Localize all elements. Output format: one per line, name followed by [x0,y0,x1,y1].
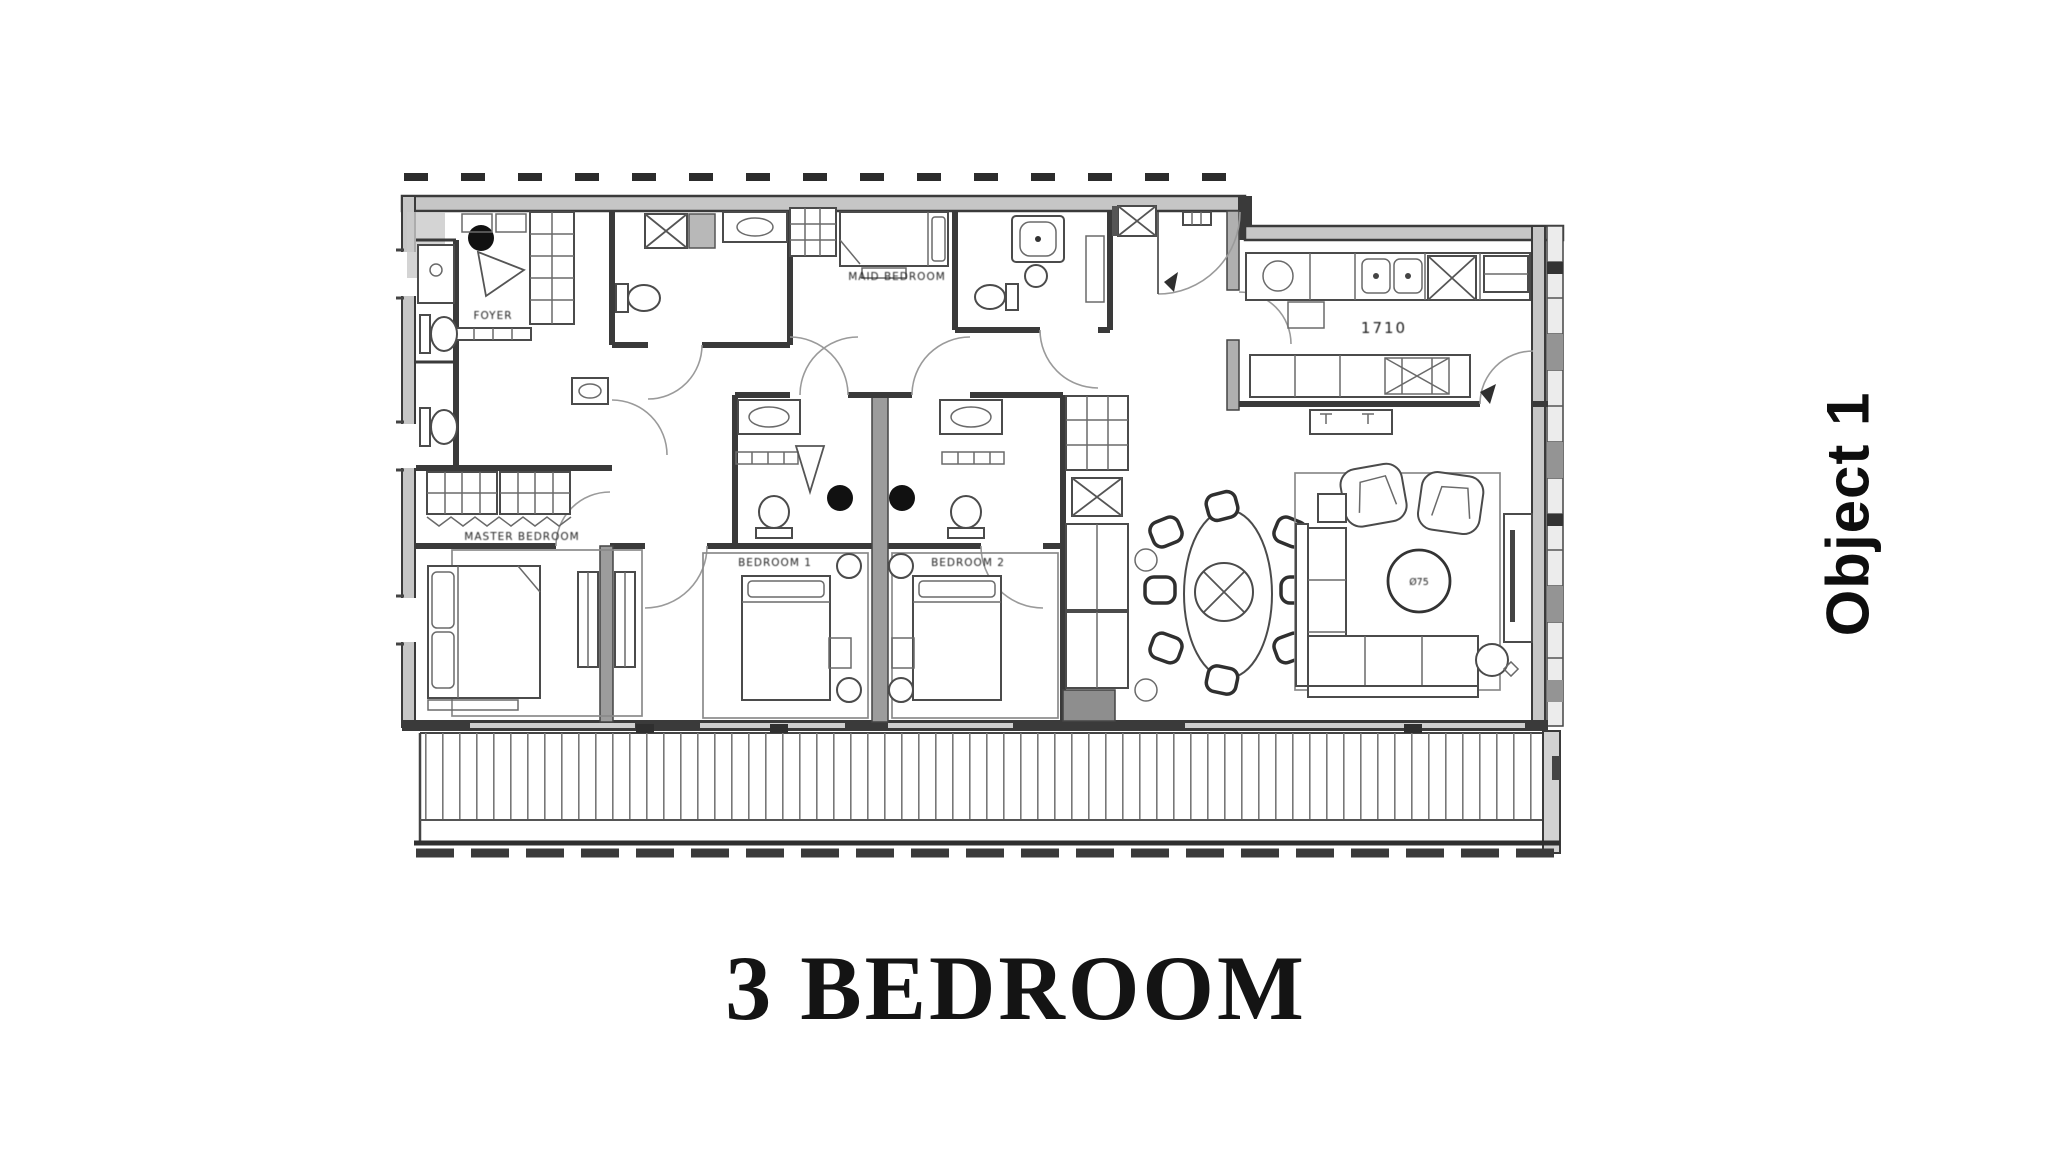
vanity-shelf [1086,236,1104,302]
kitchen-island [1250,355,1470,397]
toilet-icon [420,315,457,353]
bedroom1-label: BEDROOM 1 [738,557,812,569]
shaft-icon [1112,206,1156,236]
hall-cabinet-column [1063,396,1157,721]
nightstand-icon [837,554,861,578]
sink-counter [738,400,800,434]
wall-kitchen-left-lower [1227,340,1239,410]
kitchen-dim-label: 1710 [1361,319,1407,337]
shelf-ticks [958,452,990,464]
bathroom-top-right [975,216,1104,310]
bed-icon [742,576,830,700]
bedroom-2: BEDROOM 2 [889,553,1058,718]
slider-glass-4 [1185,723,1525,728]
mullion-gray-3 [1547,586,1563,622]
coffee-table-label: Ø75 [1409,577,1429,588]
foyer-label: FOYER [473,310,512,322]
shower-cone-icon [796,446,824,492]
master-bedroom-label: MASTER BEDROOM [464,531,579,543]
stool-icon [837,678,861,702]
slider-glass-3 [888,723,1013,728]
bath-left-door-arc [790,337,848,395]
mullion-dark-2 [1547,514,1563,526]
toilet-icon [616,284,660,312]
object-side-label: Object 1 [1814,392,1883,637]
under-counter-shelf [1288,302,1324,328]
maid-bedroom: MAID BEDROOM [790,208,948,283]
rail-nub-1 [636,724,654,733]
towel-shelf [736,452,798,464]
vanity-counter [418,245,454,303]
mullion-gray-4 [1547,680,1563,702]
wall-kitchen-left-upper [1227,211,1239,290]
balcony-right-post [1552,756,1560,780]
bed-icon [840,212,948,266]
vent-grille-icon [1183,212,1211,225]
kitchen-top-wall [1245,226,1563,240]
entry-arrow-icon [1164,272,1178,292]
bathroom-right [889,400,1004,538]
bathroom-left [736,400,853,538]
dining-chair [1147,631,1184,666]
shower-icon [1012,216,1064,262]
wall-central-divider [872,395,888,722]
bedroom-1: BEDROOM 1 [703,553,868,718]
cabinet-grid [1066,396,1128,470]
shower-drain-dot [889,485,915,511]
closet-valance-zigzag [427,517,571,526]
balcony [414,724,1560,853]
toilet-icon [948,496,984,538]
stool-icon [889,678,913,702]
dining-chair [1145,577,1175,603]
knob-circle-2 [1135,679,1157,701]
living-room: Ø75 [1295,461,1532,697]
wall-master-bed1 [600,546,613,722]
master-closet-row [427,472,571,526]
toilet-icon [420,408,457,446]
rail-nub-2 [770,724,788,733]
sofa-icon [1296,524,1478,697]
wardrobe-icon [790,208,836,256]
mullion-gray-1 [1547,334,1563,370]
mullion-gray-2 [1547,442,1563,478]
bath-right-door-arc [912,337,970,395]
knob-circle-1 [1135,549,1157,571]
side-table-square [1318,494,1346,522]
side-table [892,638,914,668]
ceiling-light-dot [468,225,494,251]
kitchen-peninsula [1310,410,1392,434]
dining-chair [1147,514,1185,549]
bed-bench [428,700,518,710]
shaft-icon [645,214,687,248]
nightstand-icon [889,554,913,578]
left-bath-strip [418,245,608,446]
balcony-right-wall [1543,731,1560,853]
shelf-ticks [752,452,784,464]
round-table-icon [1195,563,1253,621]
mullion-dark-1 [1547,262,1563,274]
page: FOYER MASTER BEDROOM [0,0,2048,1152]
bathB-door-arc [1040,330,1098,388]
armchair-icon [1416,470,1485,536]
sink-icon [572,378,608,404]
foyer: FOYER [455,212,574,340]
toilet-icon [975,284,1018,310]
shaft-icon [1072,478,1122,516]
pedestal-sink-icon [1025,265,1047,287]
corridor-door-arc [612,400,667,455]
left-window-3 [400,598,417,642]
dining-chair [1205,664,1240,696]
left-window-2 [400,424,417,468]
service-block [1063,690,1115,721]
bedroom1-door-arc [645,546,707,608]
bed-icon [913,576,1001,700]
sink-counter [940,400,1002,434]
shower-drain-dot [827,485,853,511]
sink-counter [723,212,787,242]
coffee-table-icon: Ø75 [1388,550,1450,612]
tv-console-icon [1504,514,1532,642]
page-title: 3 BEDROOM [725,935,1307,1041]
bathroom-top-left [616,212,787,312]
stove-icon [1428,256,1476,300]
maid-door-arc [800,337,858,395]
slider-glass-1 [470,723,635,728]
shelf-2 [496,214,526,232]
right-wall [1532,226,1545,726]
entry-cone-icon [478,252,524,296]
dining-area [1145,490,1311,696]
toilet-icon [756,496,792,538]
bathA-door-arc [648,345,702,399]
bed-icon [428,566,540,698]
armchair-icon [1338,461,1409,529]
bedroom2-label: BEDROOM 2 [931,557,1005,569]
washer-icon [689,214,715,248]
side-table [829,638,851,668]
maid-bedroom-label: MAID BEDROOM [848,271,946,283]
floor-lamp-icon [1476,644,1518,676]
rail-nub-3 [1404,724,1422,733]
balcony-slats [422,733,1543,820]
towel-shelf [942,452,1004,464]
